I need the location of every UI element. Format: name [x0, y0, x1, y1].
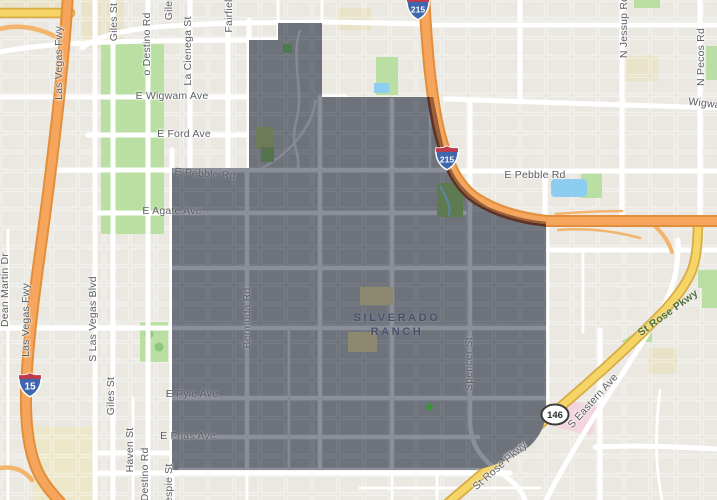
pond	[551, 179, 587, 197]
map-base-layer	[0, 0, 717, 500]
pond	[374, 83, 389, 93]
map-canvas[interactable]: SILVERADO RANCH Las Vegas FwyLas Vegas F…	[0, 0, 717, 500]
